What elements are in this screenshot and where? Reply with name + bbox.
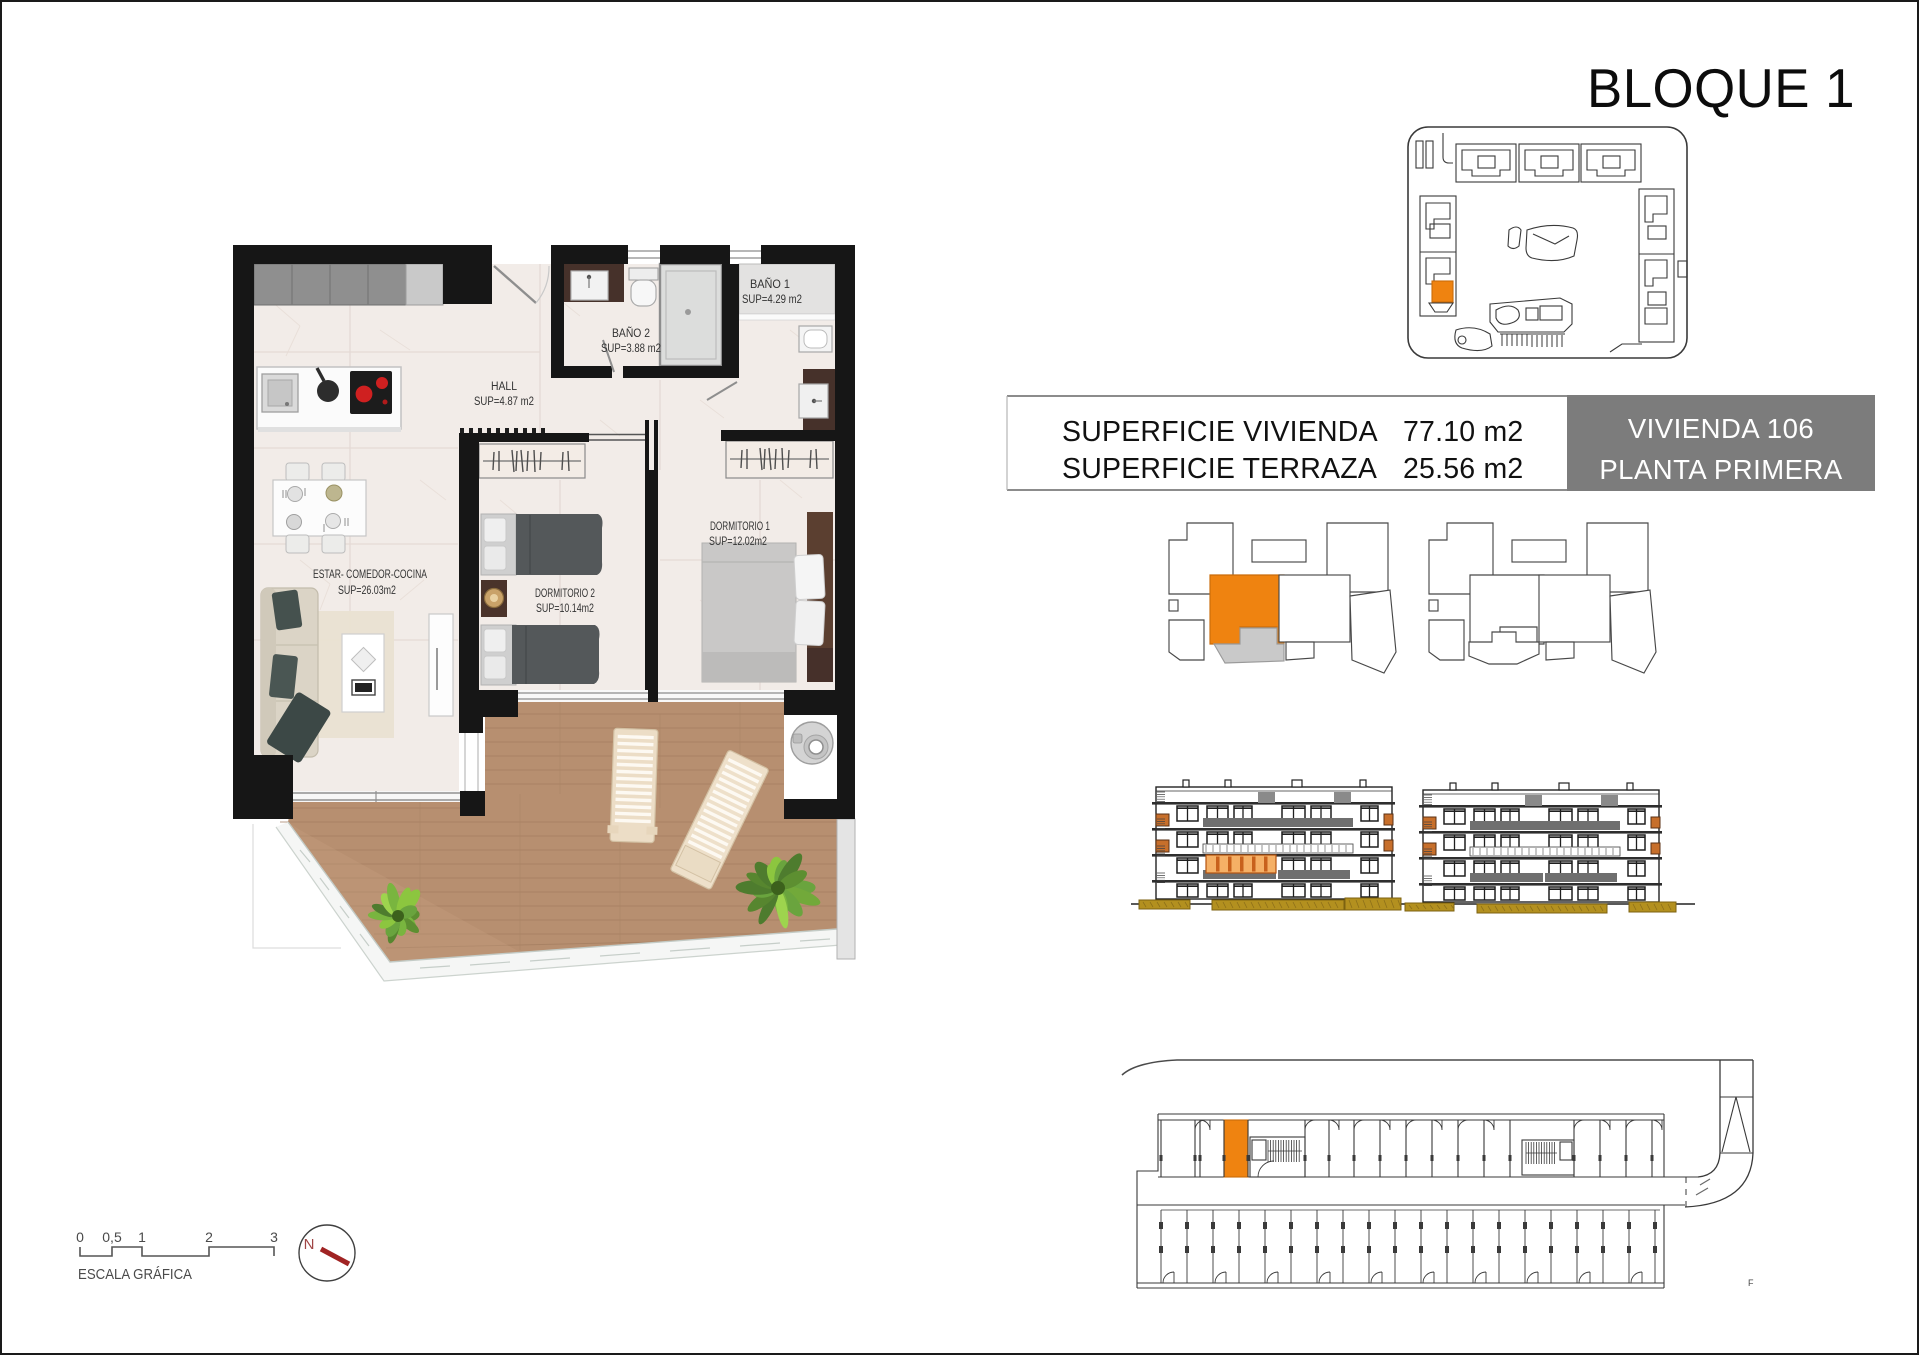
svg-text:SUP=26.03m2: SUP=26.03m2	[338, 585, 396, 597]
svg-text:SUPERFICIE TERRAZA: SUPERFICIE TERRAZA	[1062, 453, 1377, 485]
svg-text:SUP=4.29 m2: SUP=4.29 m2	[742, 294, 802, 306]
svg-text:SUP=10.14m2: SUP=10.14m2	[536, 603, 594, 615]
svg-text:SUP=12.02m2: SUP=12.02m2	[709, 536, 767, 548]
svg-text:SUP=3.88 m2: SUP=3.88 m2	[601, 343, 661, 355]
svg-text:N: N	[304, 1236, 315, 1253]
svg-text:BLOQUE 1: BLOQUE 1	[1587, 57, 1855, 119]
svg-text:0: 0	[76, 1229, 84, 1245]
svg-text:BAÑO 1: BAÑO 1	[750, 278, 790, 291]
svg-text:SUP=4.87 m2: SUP=4.87 m2	[474, 396, 534, 408]
svg-text:DORMITORIO 2: DORMITORIO 2	[535, 588, 595, 600]
svg-text:ESTAR- COMEDOR-COCINA: ESTAR- COMEDOR-COCINA	[313, 569, 427, 581]
svg-text:BAÑO 2: BAÑO 2	[612, 327, 650, 340]
svg-text:ESCALA GRÁFICA: ESCALA GRÁFICA	[78, 1266, 192, 1283]
svg-text:25.56 m2: 25.56 m2	[1403, 453, 1523, 485]
svg-text:PLANTA PRIMERA: PLANTA PRIMERA	[1599, 454, 1843, 485]
svg-text:DORMITORIO 1: DORMITORIO 1	[710, 521, 770, 533]
svg-text:1: 1	[138, 1229, 146, 1245]
svg-text:F: F	[1748, 1278, 1754, 1288]
svg-text:HALL: HALL	[491, 381, 518, 393]
svg-text:VIVIENDA 106: VIVIENDA 106	[1628, 413, 1814, 444]
svg-text:3: 3	[270, 1229, 278, 1245]
svg-text:0,5: 0,5	[102, 1229, 122, 1245]
svg-text:2: 2	[205, 1229, 213, 1245]
svg-text:SUPERFICIE VIVIENDA: SUPERFICIE VIVIENDA	[1062, 416, 1378, 448]
svg-text:77.10 m2: 77.10 m2	[1403, 416, 1523, 448]
